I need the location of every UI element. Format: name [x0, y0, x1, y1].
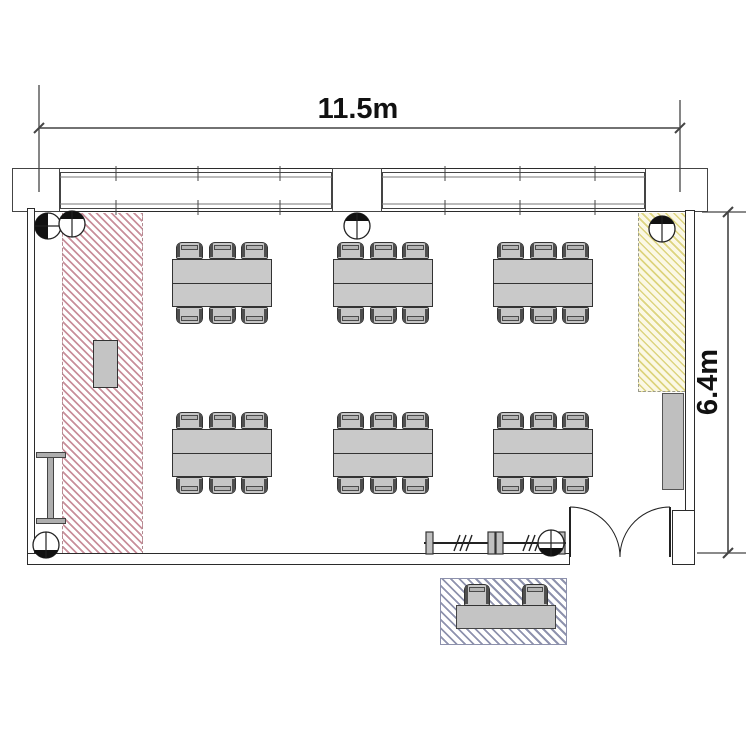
chair	[241, 477, 268, 494]
chair	[209, 242, 236, 259]
window-left	[60, 172, 332, 209]
chair	[530, 307, 557, 324]
speaker-fill-segment	[35, 213, 48, 239]
chair	[497, 477, 524, 494]
side-cabinet	[662, 393, 684, 490]
bottom-right-corner	[672, 510, 695, 565]
width-dimension-label: 11.5m	[298, 93, 418, 126]
break-mark	[523, 535, 529, 551]
break-mark	[535, 535, 541, 551]
wall-pier-middle	[332, 168, 382, 212]
chair	[241, 412, 268, 429]
bottom-wall	[27, 553, 570, 565]
entrance-chair	[464, 584, 490, 606]
window-right	[382, 172, 645, 209]
left-wall	[27, 208, 35, 565]
chair	[530, 477, 557, 494]
break-mark	[454, 535, 460, 551]
chair	[337, 242, 364, 259]
table-group	[172, 259, 272, 307]
chair	[176, 477, 203, 494]
depth-dimension-label: 6.4m	[692, 322, 724, 442]
chair	[176, 307, 203, 324]
ceiling-speaker-icon	[35, 213, 61, 239]
partition-post	[488, 532, 495, 554]
wall-pier-left	[12, 168, 60, 212]
lectern	[93, 340, 118, 388]
chair	[402, 307, 429, 324]
entrance-bench	[456, 605, 556, 629]
chair	[497, 307, 524, 324]
ceiling-speaker-icon	[344, 213, 370, 239]
chair	[209, 412, 236, 429]
entrance-chair	[522, 584, 548, 606]
chair	[241, 307, 268, 324]
chair	[370, 477, 397, 494]
table-group	[333, 429, 433, 477]
chair	[402, 242, 429, 259]
table-group	[172, 429, 272, 477]
chair	[562, 477, 589, 494]
speaker-fill-segment	[345, 213, 369, 221]
chair	[530, 412, 557, 429]
chair	[337, 412, 364, 429]
table-group	[493, 429, 593, 477]
chair	[370, 412, 397, 429]
wall-pier-right	[645, 168, 708, 212]
chair	[530, 242, 557, 259]
chair	[497, 412, 524, 429]
chair	[337, 477, 364, 494]
chair	[402, 412, 429, 429]
chair	[209, 307, 236, 324]
partition-post	[496, 532, 503, 554]
chair	[497, 242, 524, 259]
chair	[562, 242, 589, 259]
chair	[562, 412, 589, 429]
chair	[337, 307, 364, 324]
chair	[370, 242, 397, 259]
partition-post	[558, 532, 565, 554]
chair	[176, 412, 203, 429]
floor-plan: 11.5m 6.4m	[0, 0, 750, 750]
chair	[176, 242, 203, 259]
break-mark	[460, 535, 466, 551]
partition-post	[426, 532, 433, 554]
chair	[562, 307, 589, 324]
chair	[402, 477, 429, 494]
screen-bottom-cap	[36, 518, 66, 524]
screen-stem	[47, 457, 54, 519]
break-mark	[529, 535, 535, 551]
chair	[370, 307, 397, 324]
double-door	[570, 507, 670, 557]
chair	[241, 242, 268, 259]
break-mark	[466, 535, 472, 551]
table-group	[493, 259, 593, 307]
table-group	[333, 259, 433, 307]
side-zone	[638, 213, 685, 392]
chair	[209, 477, 236, 494]
